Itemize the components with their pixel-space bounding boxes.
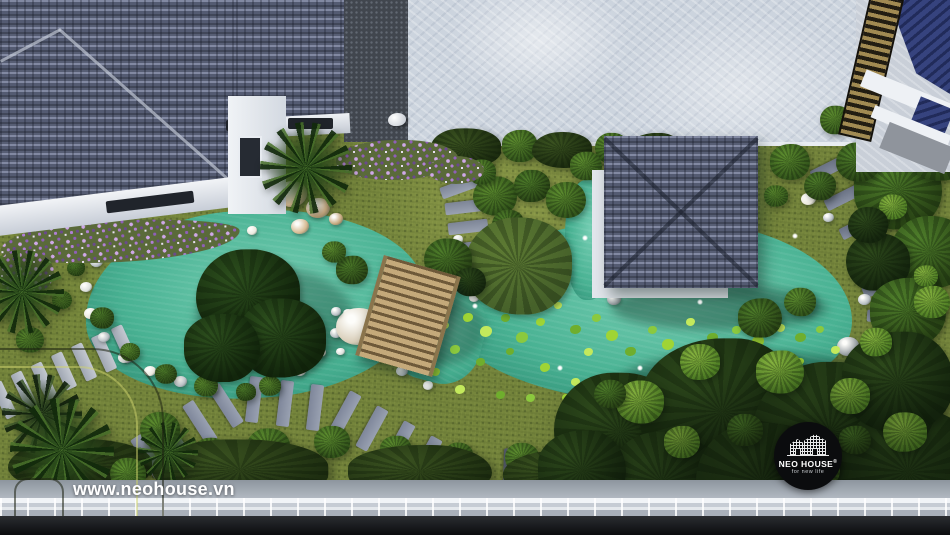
bush — [860, 328, 892, 357]
bush — [314, 426, 350, 458]
bush — [464, 217, 572, 314]
water-flower — [637, 365, 643, 371]
perimeter-fence — [0, 498, 950, 518]
rock — [329, 213, 343, 225]
bush — [914, 286, 950, 318]
rock — [336, 348, 345, 356]
bush — [236, 383, 256, 401]
garden-aerial-render: www.neohouse.vn NEO HOUSE® for new life — [0, 0, 950, 535]
rock — [423, 381, 433, 390]
lily-pad — [480, 326, 492, 337]
lily-pad — [506, 348, 514, 355]
water-flower — [472, 303, 478, 309]
lily-pad — [536, 318, 545, 326]
lily-pad — [501, 314, 510, 322]
boundary-shadow-band — [0, 516, 950, 535]
stepping-stone — [70, 342, 97, 382]
rock — [823, 213, 834, 222]
lily-pad — [662, 339, 674, 350]
lily-pad — [795, 333, 806, 343]
bush — [770, 144, 810, 180]
registered-mark: ® — [833, 459, 837, 465]
lily-pad — [606, 330, 618, 341]
logo-house-icon — [787, 433, 829, 456]
rock — [331, 307, 341, 316]
bush — [756, 350, 804, 393]
water-flower — [582, 235, 588, 241]
rock — [247, 226, 257, 235]
lily-pad — [463, 313, 473, 322]
bush — [120, 343, 140, 361]
lily-pad — [570, 325, 581, 335]
bush — [514, 170, 550, 202]
lily-pad — [476, 358, 485, 366]
lily-pad — [450, 345, 460, 354]
logo-house-icon — [804, 434, 826, 455]
bush — [259, 376, 281, 396]
water-flower — [697, 299, 703, 305]
rock — [98, 332, 110, 342]
lily-pad — [496, 391, 505, 399]
lily-pad — [625, 347, 636, 357]
website-url: www.neohouse.vn — [73, 479, 235, 500]
water-flower — [792, 233, 798, 239]
stepping-stone — [306, 384, 324, 431]
neohouse-logo: NEO HOUSE® for new life — [774, 422, 842, 490]
lily-pad — [516, 332, 528, 343]
lily-pad — [831, 346, 840, 354]
lily-pad — [540, 363, 550, 372]
lily-pad — [526, 394, 535, 402]
logo-brand-name: NEO HOUSE® — [779, 459, 838, 469]
palm-tree — [138, 422, 198, 482]
bush — [848, 207, 888, 243]
palm-tree — [260, 122, 352, 214]
bush — [727, 414, 763, 446]
bush — [784, 288, 816, 317]
window — [238, 136, 262, 178]
bush — [839, 426, 871, 455]
rock — [80, 282, 92, 292]
bush — [883, 412, 927, 452]
bush — [546, 182, 586, 218]
bush — [914, 265, 938, 287]
white-bird — [388, 113, 406, 126]
lily-pad — [686, 318, 695, 326]
logo-tagline: for new life — [792, 469, 825, 475]
flower-bed-path — [428, 156, 484, 184]
bush — [738, 298, 782, 338]
bush — [830, 378, 870, 414]
pavilion-roof — [604, 136, 758, 288]
lily-pad — [648, 326, 657, 334]
rock — [291, 219, 309, 234]
lily-pad — [455, 385, 465, 394]
lily-pad — [584, 348, 593, 356]
bush — [804, 172, 836, 201]
bush — [322, 241, 346, 263]
bush — [155, 364, 177, 384]
pine-tree — [184, 314, 260, 382]
lily-pad — [592, 314, 601, 322]
bush — [680, 344, 720, 380]
water-flower — [557, 365, 563, 371]
bush — [594, 380, 626, 409]
bush — [90, 307, 114, 329]
bush — [664, 426, 700, 458]
logo-house-icon — [790, 439, 805, 455]
bush — [764, 185, 788, 207]
lily-pad — [816, 326, 824, 333]
rock — [858, 294, 871, 305]
